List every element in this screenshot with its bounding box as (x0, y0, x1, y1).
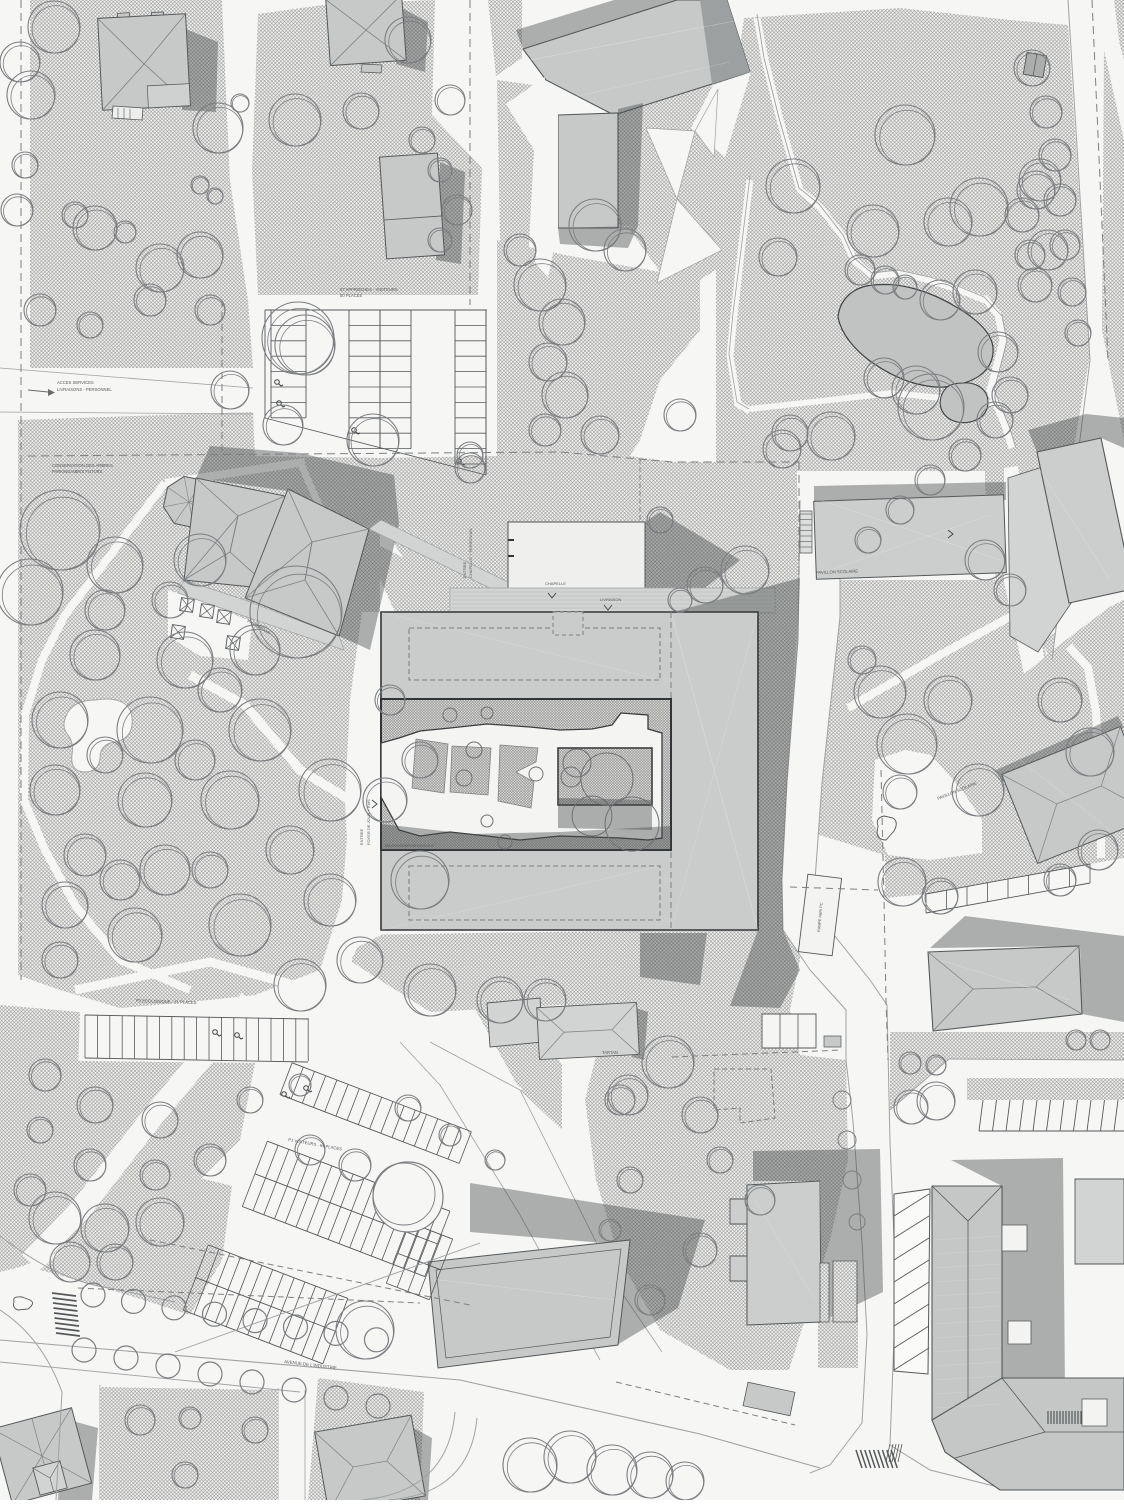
svg-text:FOYER DE JOUR + EMS: FOYER DE JOUR + EMS (366, 799, 371, 845)
svg-text:ACCES SERVICES: ACCES SERVICES (57, 380, 94, 385)
svg-text:CHAPELLE: CHAPELLE (545, 581, 566, 586)
svg-text:67 APPROCHES - VISITEURS: 67 APPROCHES - VISITEURS (340, 287, 398, 292)
svg-text:ENTREE: ENTREE (462, 561, 467, 578)
svg-text:LIVRAISONS - PERSONNEL: LIVRAISONS - PERSONNEL (57, 387, 112, 392)
svg-text:CONSERVATION DES ARBRES: CONSERVATION DES ARBRES (52, 463, 113, 468)
svg-text:ENTREE: ENTREE (359, 828, 364, 845)
svg-text:CHAPELLE + PERSONNEL: CHAPELLE + PERSONNEL (468, 527, 473, 578)
svg-text:LIVRAISON: LIVRAISON (600, 597, 621, 602)
svg-text:50 PLACES: 50 PLACES (340, 293, 363, 298)
svg-text:PARKING/ABRIS FUTURS: PARKING/ABRIS FUTURS (52, 469, 103, 474)
svg-text:TARTAN: TARTAN (602, 1050, 618, 1055)
svg-text:MACROGRAPHIE ECOLE B: MACROGRAPHIE ECOLE B (385, 844, 434, 848)
